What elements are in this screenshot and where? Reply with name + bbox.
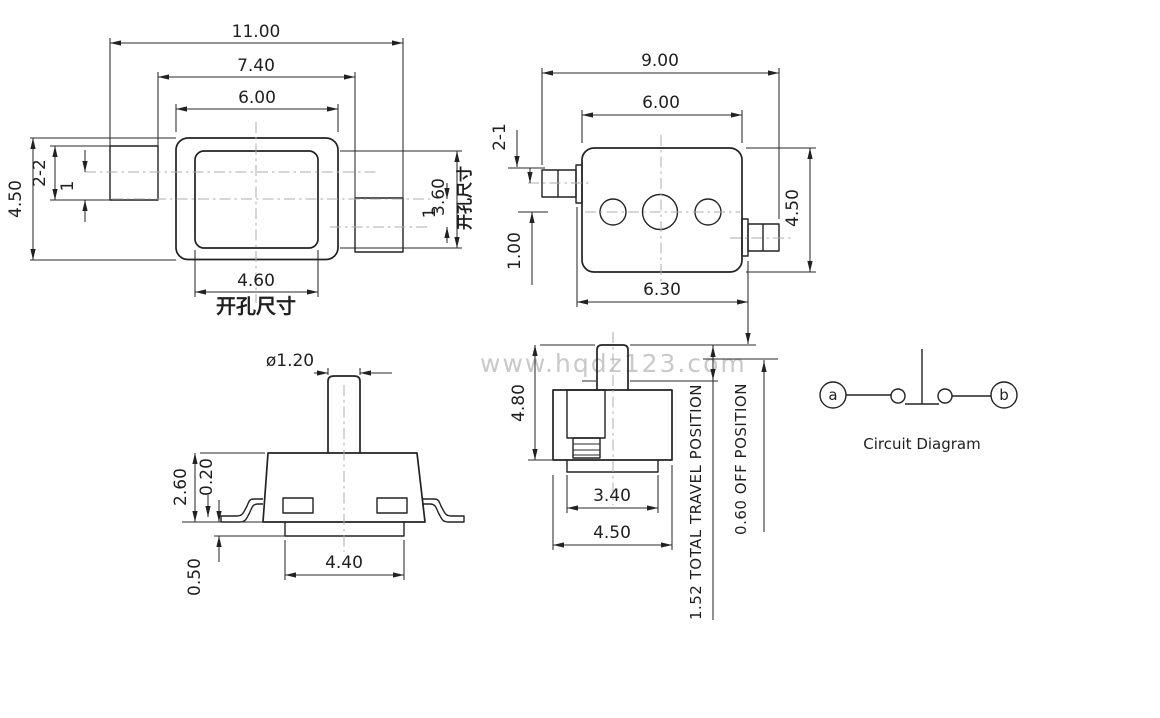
dim-offset-left: 1: [58, 181, 78, 192]
dim-terminal-size: 2-2: [30, 159, 50, 187]
circuit-terminal-b: b: [999, 386, 1009, 404]
dim-boss-height: 0.50: [185, 558, 205, 596]
dim-body-width: 6.00: [238, 88, 276, 108]
dim-overall-width-b: 9.00: [641, 51, 679, 71]
top-right-centerlines: [528, 135, 792, 282]
dim-inner-width: 7.40: [237, 56, 275, 76]
circuit-diagram: a b Circuit Diagram: [820, 349, 1017, 453]
dim-terminal-size-b: 2-1: [490, 123, 510, 151]
view-top-left: 11.00 7.40 6.00 4.60 开孔尺寸 4.50 2-2 1 3.6…: [6, 22, 474, 318]
dim-base-width-b: 6.30: [643, 280, 681, 300]
dim-body-height-c: 2.60: [171, 468, 191, 506]
dim-stem-diameter: ø1.20: [266, 351, 314, 371]
circuit-caption: Circuit Diagram: [863, 435, 980, 453]
dim-body-width-b: 6.00: [642, 93, 680, 113]
dim-body-height-b: 4.50: [783, 189, 803, 227]
circuit-wires: [846, 349, 991, 404]
dim-body-height: 4.50: [6, 180, 26, 218]
top-left-dimension-lines: [33, 43, 457, 292]
circuit-terminal-a: a: [828, 386, 837, 404]
dim-total-height: 4.80: [509, 384, 529, 422]
view-top-right: 9.00 6.00 2-1 1.00 4.50 6.30: [490, 51, 816, 307]
bottom-left-outline: [221, 368, 464, 536]
dim-offset-right: 1: [420, 208, 440, 219]
view-bottom-left: ø1.20 2.60 0.20 0.50 4.40: [171, 351, 464, 596]
hole-size-label-right: 开孔尺寸: [455, 166, 474, 230]
dim-lead-thickness: 0.20: [197, 458, 217, 496]
drawing-sheet: www.hqdz123.com: [0, 0, 1160, 718]
dim-hole-width: 4.60: [237, 271, 275, 291]
bottom-left-dimension-lines: [195, 373, 404, 575]
dim-lead-span: 4.40: [325, 553, 363, 573]
dim-base-width-d: 4.50: [593, 523, 631, 543]
dim-offset-b: 1.00: [505, 232, 525, 270]
note-off-position: 0.60 OFF POSITION: [732, 383, 750, 535]
note-total-travel: 1.52 TOTAL TRAVEL POSITION: [687, 384, 705, 620]
dim-overall-width: 11.00: [232, 22, 281, 42]
drawing-canvas: www.hqdz123.com: [0, 0, 1160, 718]
hole-size-label-bottom: 开孔尺寸: [216, 294, 296, 318]
dim-boss-width: 3.40: [593, 486, 631, 506]
